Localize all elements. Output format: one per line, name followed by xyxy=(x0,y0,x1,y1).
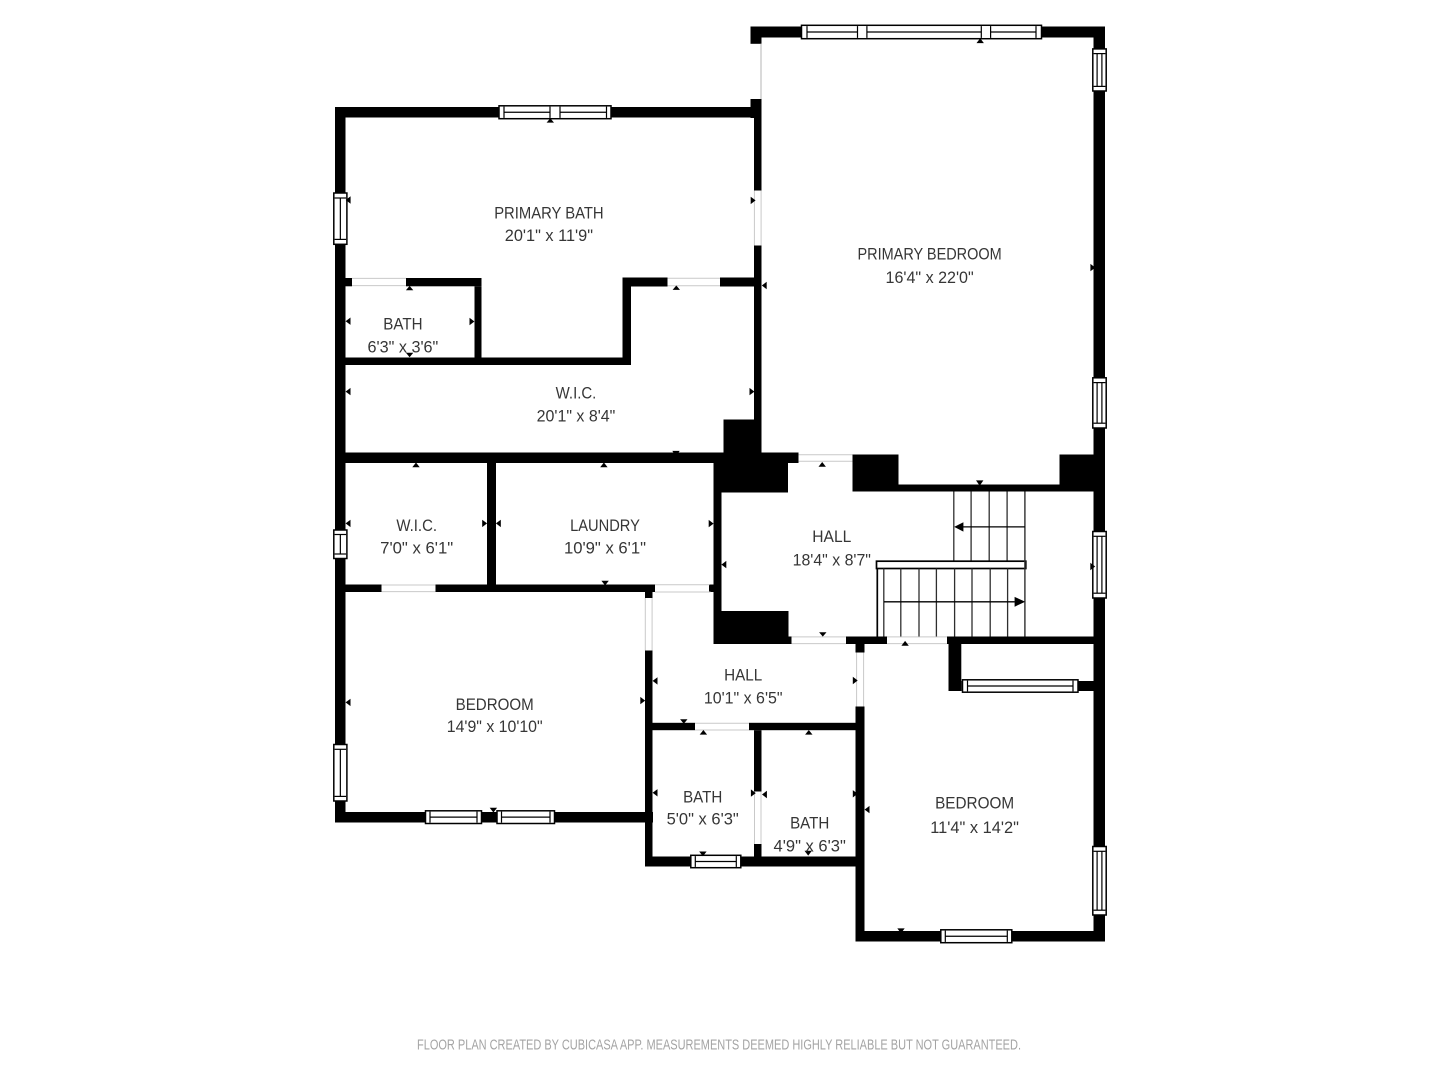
svg-text:16'4" x 22'0": 16'4" x 22'0" xyxy=(886,269,974,287)
svg-text:7'0" x 6'1": 7'0" x 6'1" xyxy=(380,540,453,558)
svg-text:HALL: HALL xyxy=(812,528,851,546)
svg-text:PRIMARY BEDROOM: PRIMARY BEDROOM xyxy=(858,246,1002,264)
svg-text:4'9" x 6'3": 4'9" x 6'3" xyxy=(774,838,846,856)
svg-text:HALL: HALL xyxy=(724,667,762,685)
svg-text:BEDROOM: BEDROOM xyxy=(456,696,534,714)
svg-text:BATH: BATH xyxy=(790,814,829,832)
svg-text:LAUNDRY: LAUNDRY xyxy=(570,517,640,535)
svg-text:5'0" x 6'3": 5'0" x 6'3" xyxy=(667,811,739,829)
svg-text:10'1" x 6'5": 10'1" x 6'5" xyxy=(704,690,783,708)
svg-text:BATH: BATH xyxy=(683,788,722,806)
svg-text:W.I.C.: W.I.C. xyxy=(396,517,437,535)
svg-text:BATH: BATH xyxy=(383,316,422,334)
svg-text:10'9" x 6'1": 10'9" x 6'1" xyxy=(564,540,646,558)
svg-text:6'3" x 3'6": 6'3" x 3'6" xyxy=(368,339,439,357)
svg-text:PRIMARY BATH: PRIMARY BATH xyxy=(494,204,603,222)
svg-text:W.I.C.: W.I.C. xyxy=(556,384,597,402)
svg-text:BEDROOM: BEDROOM xyxy=(935,795,1014,813)
svg-text:11'4" x 14'2": 11'4" x 14'2" xyxy=(930,819,1019,837)
svg-text:18'4" x 8'7": 18'4" x 8'7" xyxy=(793,552,871,570)
svg-text:20'1" x 11'9": 20'1" x 11'9" xyxy=(505,227,593,245)
svg-text:20'1" x 8'4": 20'1" x 8'4" xyxy=(537,408,616,426)
svg-text:14'9" x 10'10": 14'9" x 10'10" xyxy=(447,718,543,736)
svg-text:FLOOR PLAN CREATED BY CUBICASA: FLOOR PLAN CREATED BY CUBICASA APP. MEAS… xyxy=(417,1037,1021,1054)
